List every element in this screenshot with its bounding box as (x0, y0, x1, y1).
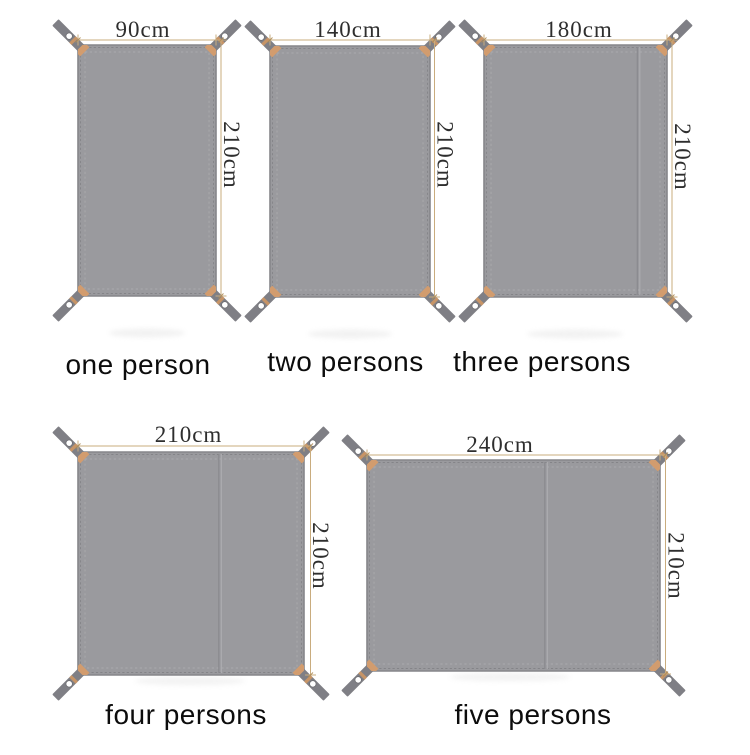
svg-text:210cm: 210cm (670, 123, 695, 191)
svg-text:210cm: 210cm (308, 522, 333, 590)
svg-text:240cm: 240cm (466, 432, 534, 457)
svg-text:five persons: five persons (455, 699, 612, 730)
svg-text:140cm: 140cm (314, 17, 382, 42)
svg-text:four persons: four persons (105, 699, 267, 730)
svg-text:two persons: two persons (267, 346, 423, 377)
svg-text:three persons: three persons (453, 346, 631, 377)
svg-text:210cm: 210cm (155, 422, 223, 447)
svg-text:210cm: 210cm (664, 532, 689, 600)
svg-text:90cm: 90cm (115, 17, 170, 42)
svg-text:210cm: 210cm (433, 121, 458, 189)
svg-text:one person: one person (65, 349, 210, 380)
svg-text:180cm: 180cm (545, 17, 613, 42)
svg-text:210cm: 210cm (219, 121, 244, 189)
